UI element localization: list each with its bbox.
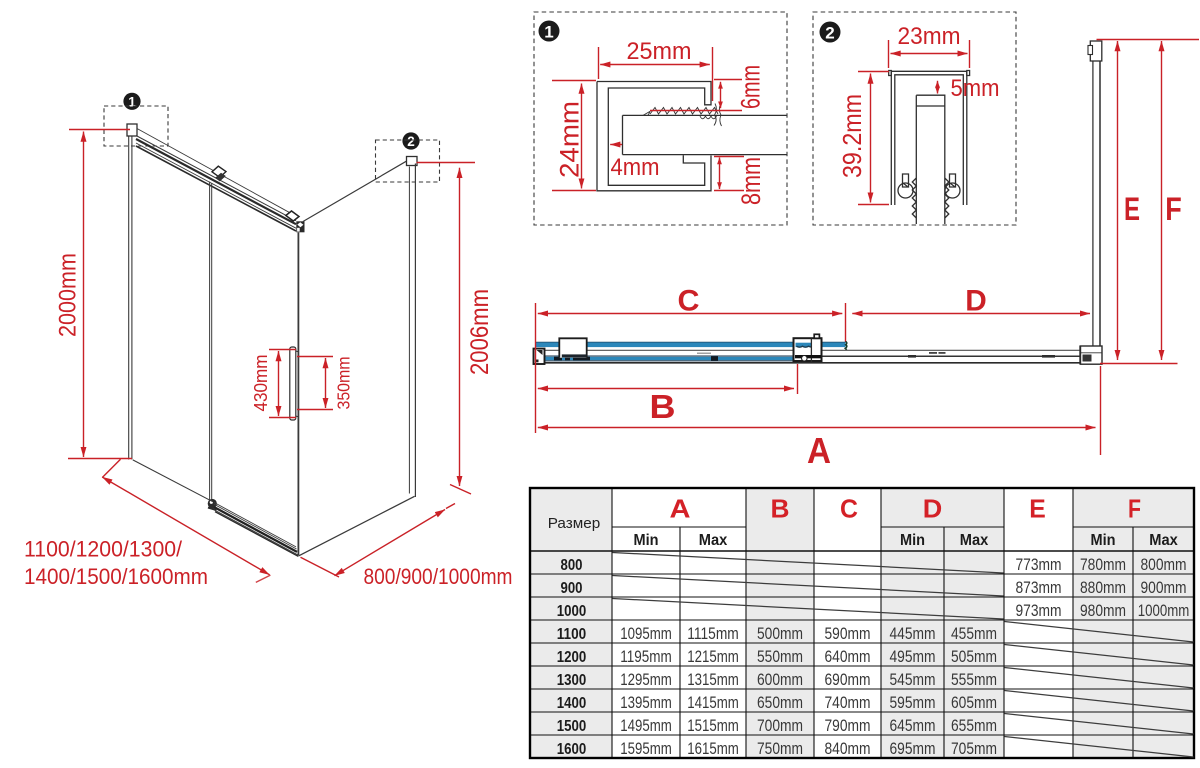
svg-text:1415mm: 1415mm [687, 694, 739, 712]
svg-text:D: D [965, 285, 987, 318]
svg-text:973mm: 973mm [1016, 602, 1062, 620]
svg-text:700mm: 700mm [757, 717, 803, 735]
svg-text:900: 900 [561, 580, 583, 597]
svg-text:1115mm: 1115mm [687, 625, 739, 643]
svg-text:650mm: 650mm [757, 694, 803, 712]
svg-text:873mm: 873mm [1016, 579, 1062, 597]
svg-text:Размер: Размер [548, 516, 601, 532]
svg-text:B: B [771, 494, 790, 524]
svg-text:2006mm: 2006mm [466, 289, 494, 375]
svg-text:590mm: 590mm [825, 625, 871, 643]
svg-text:39.2mm: 39.2mm [837, 94, 867, 178]
svg-text:B: B [650, 388, 676, 425]
svg-text:545mm: 545mm [890, 671, 936, 689]
svg-text:6mm: 6mm [736, 65, 766, 109]
svg-text:555mm: 555mm [951, 671, 997, 689]
svg-text:1100: 1100 [557, 626, 587, 643]
svg-text:655mm: 655mm [951, 717, 997, 735]
svg-text:D: D [923, 494, 943, 524]
svg-text:800mm: 800mm [1141, 556, 1187, 574]
svg-text:A: A [670, 494, 691, 524]
svg-text:705mm: 705mm [951, 740, 997, 758]
svg-text:840mm: 840mm [825, 740, 871, 758]
svg-text:640mm: 640mm [825, 648, 871, 666]
svg-text:F: F [1165, 191, 1182, 227]
svg-text:1215mm: 1215mm [687, 648, 739, 666]
svg-text:25mm: 25mm [627, 38, 692, 65]
svg-text:790mm: 790mm [825, 717, 871, 735]
svg-text:C: C [678, 285, 700, 318]
svg-text:800/900/1000mm: 800/900/1000mm [364, 564, 513, 589]
svg-text:C: C [840, 494, 858, 524]
svg-text:1295mm: 1295mm [620, 671, 672, 689]
svg-text:Max: Max [960, 532, 989, 549]
svg-text:Min: Min [1091, 532, 1116, 549]
svg-text:1615mm: 1615mm [687, 740, 739, 758]
svg-text:900mm: 900mm [1141, 579, 1187, 597]
svg-text:605mm: 605mm [951, 694, 997, 712]
svg-text:445mm: 445mm [890, 625, 936, 643]
svg-text:23mm: 23mm [898, 23, 961, 50]
svg-text:600mm: 600mm [757, 671, 803, 689]
svg-text:1495mm: 1495mm [620, 717, 672, 735]
svg-text:780mm: 780mm [1080, 556, 1126, 574]
svg-text:1595mm: 1595mm [620, 740, 672, 758]
svg-text:4mm: 4mm [611, 154, 660, 181]
svg-text:800: 800 [561, 557, 583, 574]
svg-text:Max: Max [1149, 532, 1178, 549]
svg-text:1195mm: 1195mm [620, 648, 672, 666]
svg-text:1095mm: 1095mm [620, 625, 672, 643]
svg-text:8mm: 8mm [736, 157, 766, 205]
svg-text:695mm: 695mm [890, 740, 936, 758]
svg-text:Min: Min [900, 532, 925, 549]
svg-text:1400/1500/1600mm: 1400/1500/1600mm [24, 564, 208, 589]
svg-text:A: A [807, 430, 831, 471]
svg-text:1: 1 [544, 23, 553, 42]
svg-text:980mm: 980mm [1080, 602, 1126, 620]
svg-text:430mm: 430mm [251, 355, 271, 412]
svg-text:2000mm: 2000mm [55, 253, 82, 337]
svg-text:350mm: 350mm [334, 357, 354, 410]
svg-text:773mm: 773mm [1016, 556, 1062, 574]
svg-text:505mm: 505mm [951, 648, 997, 666]
svg-text:1100/1200/1300/: 1100/1200/1300/ [24, 537, 183, 562]
svg-text:2: 2 [825, 24, 834, 43]
svg-text:5mm: 5mm [951, 75, 1000, 102]
svg-text:1300: 1300 [557, 672, 587, 689]
svg-text:595mm: 595mm [890, 694, 936, 712]
svg-text:Min: Min [634, 532, 659, 549]
svg-text:740mm: 740mm [825, 694, 871, 712]
svg-text:495mm: 495mm [890, 648, 936, 666]
svg-text:1600: 1600 [557, 741, 587, 758]
svg-text:750mm: 750mm [757, 740, 803, 758]
svg-text:2: 2 [407, 134, 415, 149]
svg-text:1400: 1400 [557, 695, 587, 712]
svg-text:880mm: 880mm [1080, 579, 1126, 597]
svg-text:645mm: 645mm [890, 717, 936, 735]
svg-text:455mm: 455mm [951, 625, 997, 643]
svg-text:24mm: 24mm [555, 101, 585, 178]
svg-text:1515mm: 1515mm [687, 717, 739, 735]
svg-text:1395mm: 1395mm [620, 694, 672, 712]
svg-text:1000: 1000 [557, 603, 587, 620]
svg-text:E: E [1029, 494, 1046, 524]
svg-text:E: E [1124, 191, 1140, 227]
svg-text:Max: Max [699, 532, 728, 549]
svg-text:1: 1 [128, 95, 136, 110]
svg-text:690mm: 690mm [825, 671, 871, 689]
svg-text:F: F [1128, 494, 1141, 524]
svg-text:1315mm: 1315mm [687, 671, 739, 689]
svg-text:550mm: 550mm [757, 648, 803, 666]
svg-text:1000mm: 1000mm [1138, 602, 1190, 620]
svg-text:1500: 1500 [557, 718, 587, 735]
svg-text:500mm: 500mm [757, 625, 803, 643]
svg-text:1200: 1200 [557, 649, 587, 666]
